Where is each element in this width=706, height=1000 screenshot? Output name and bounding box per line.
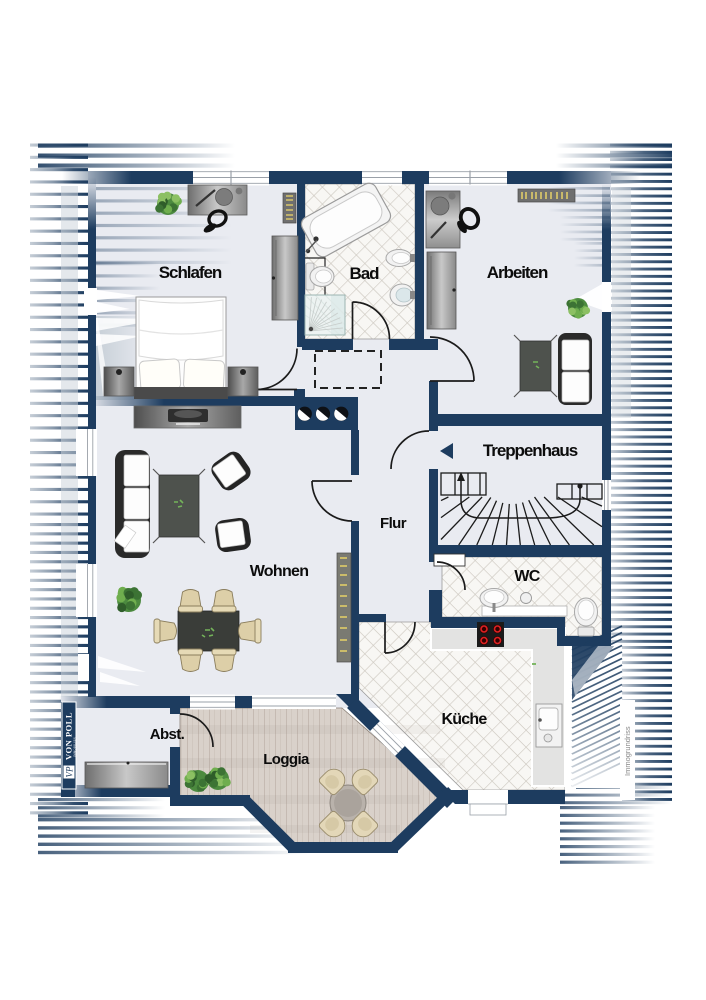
svg-text:Küche: Küche (442, 711, 488, 728)
svg-text:VON POLL: VON POLL (64, 712, 74, 760)
svg-text:Treppenhaus: Treppenhaus (483, 441, 578, 460)
svg-text:Immogrundriss: Immogrundriss (623, 726, 632, 776)
svg-text:Bad: Bad (350, 264, 380, 283)
svg-text:Loggia: Loggia (263, 751, 310, 768)
svg-text:Wohnen: Wohnen (250, 563, 309, 580)
svg-text:Flur: Flur (380, 515, 407, 532)
svg-text:IMMOBILIEN: IMMOBILIEN (74, 737, 77, 757)
svg-text:VP: VP (65, 766, 75, 777)
svg-text:Abst.: Abst. (150, 726, 185, 743)
svg-text:WC: WC (514, 568, 540, 585)
svg-text:Schlafen: Schlafen (159, 263, 222, 282)
svg-text:Arbeiten: Arbeiten (487, 263, 548, 282)
